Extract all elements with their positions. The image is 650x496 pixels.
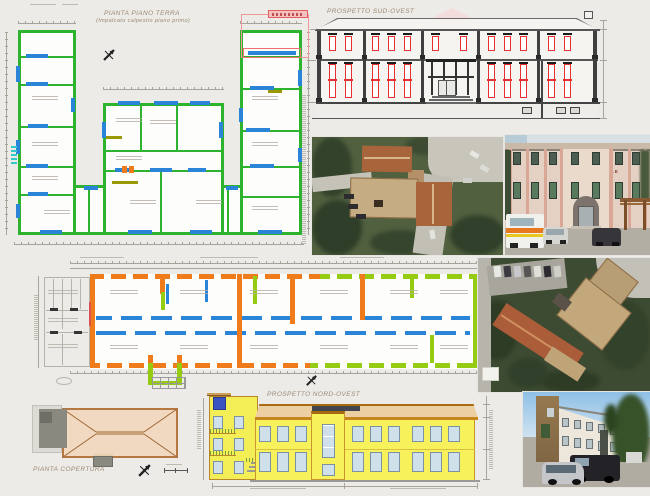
pilaster-capital (362, 98, 367, 102)
door-gap (412, 316, 421, 320)
room-label (116, 156, 142, 161)
door-gap (396, 331, 405, 335)
step (432, 96, 470, 98)
door-gap (382, 316, 391, 320)
opening-marker (150, 168, 172, 172)
dimension-ticks (600, 102, 607, 103)
opening-marker (28, 192, 48, 196)
aerial-photo-2 (478, 258, 650, 392)
wheel (572, 479, 581, 485)
opening-marker (26, 82, 48, 86)
window (295, 452, 307, 472)
revision-mark (89, 302, 91, 326)
door-gap (142, 316, 151, 320)
pilaster-capital (316, 55, 322, 59)
tree (640, 150, 650, 200)
pilaster (363, 31, 366, 102)
window-gap (276, 363, 283, 368)
door-mullion (446, 80, 447, 96)
car (503, 266, 511, 278)
sill-band (547, 79, 556, 81)
opening-marker (16, 204, 20, 218)
sill-band (371, 79, 380, 81)
car (543, 227, 568, 244)
wheel (530, 243, 538, 248)
door-gap (186, 331, 195, 335)
pergola-post (643, 200, 646, 230)
facade-photo: OSPEDALE CIVILE (505, 135, 650, 255)
legend-tick (11, 162, 17, 164)
pilaster (560, 148, 563, 228)
tall-window (322, 424, 335, 458)
dimension-text (62, 4, 78, 7)
dimension-ticks (310, 60, 316, 61)
opening-marker (258, 230, 282, 234)
dimension-line (486, 396, 487, 480)
sill-band (328, 79, 337, 81)
pilaster-capital (476, 98, 481, 102)
room-label (390, 345, 418, 350)
room-label (440, 290, 468, 295)
door-gap (126, 331, 135, 335)
dimension-ticks (310, 29, 316, 30)
wall-segment (129, 166, 134, 173)
door-gap (442, 316, 451, 320)
pilaster (609, 148, 612, 228)
window-lintel (487, 33, 496, 35)
door-gap (262, 316, 271, 320)
opening-marker (106, 136, 122, 139)
room-label (250, 345, 278, 350)
window (388, 452, 400, 472)
dimension-line (38, 276, 39, 368)
room-label (48, 344, 78, 349)
opening-marker (250, 164, 274, 168)
basement-window (556, 107, 566, 114)
window (259, 452, 271, 472)
sill-band (403, 79, 412, 81)
window (586, 439, 593, 449)
sw-elevation-title: PROSPETTO SUD-OVEST (327, 8, 414, 15)
window (632, 152, 640, 165)
wheel (560, 240, 566, 244)
opening-marker (118, 101, 140, 105)
window (404, 36, 411, 51)
window (430, 426, 442, 442)
window-lintel (371, 33, 380, 35)
window-gap (188, 363, 195, 368)
roof (317, 19, 597, 29)
hipped-roof-drawing (62, 408, 178, 458)
roof-plan-title: PIANTA COPERTURA (33, 466, 105, 473)
annotation-text (272, 13, 304, 16)
sill-band (344, 79, 353, 81)
window-lintel (431, 33, 440, 35)
window (548, 64, 555, 98)
window (430, 452, 442, 472)
dimension-ticks (18, 21, 76, 24)
opening-marker (71, 98, 75, 112)
window (549, 152, 557, 165)
stamp-oval (56, 377, 72, 385)
window (615, 182, 623, 199)
balcony-rail (210, 451, 236, 456)
wall-segment (160, 274, 165, 294)
window-gap (122, 363, 129, 368)
room-label (250, 290, 278, 295)
window (277, 426, 289, 442)
window (592, 182, 600, 199)
window-gap (302, 274, 309, 279)
room-label (116, 118, 142, 123)
room-label (110, 290, 138, 295)
legend-tick (11, 150, 17, 152)
opening-marker (128, 230, 152, 234)
dimension-text (80, 257, 124, 260)
dimension-text (250, 488, 306, 491)
door-marker (50, 331, 58, 334)
column (431, 62, 433, 95)
window (574, 420, 581, 429)
door-gap (336, 331, 345, 335)
dimension-ticks (344, 483, 345, 489)
room-label (196, 200, 222, 205)
window (504, 36, 511, 51)
door-gap (276, 331, 285, 335)
pediment (560, 146, 612, 149)
car (543, 266, 551, 278)
tower-door (213, 397, 226, 410)
window (615, 152, 623, 165)
southwest-elevation: PROSPETTO SUD-OVEST (305, 0, 650, 132)
northwest-elevation: PROSPETTO NORD-OVEST (195, 385, 495, 496)
car (344, 194, 354, 199)
dimension-text (30, 4, 56, 7)
pergola-post (624, 200, 627, 230)
window-lintel (547, 33, 556, 35)
window (574, 438, 581, 448)
window (488, 36, 495, 51)
room-label (48, 290, 78, 295)
window (571, 182, 579, 199)
window (513, 152, 521, 165)
scale-label (166, 464, 182, 467)
doorway (600, 430, 608, 456)
window (234, 416, 244, 429)
opening-marker (219, 122, 223, 138)
opening-marker (298, 148, 302, 162)
car (493, 266, 501, 278)
window-gap (170, 274, 177, 279)
wheel (546, 240, 552, 244)
window (549, 182, 557, 199)
tree (505, 150, 511, 220)
car (553, 266, 561, 278)
floor-band (255, 449, 475, 450)
column (467, 62, 469, 95)
wall-segment (140, 106, 142, 150)
window-gap (418, 274, 425, 279)
room-label (130, 200, 156, 205)
aerial-photo-1 (312, 137, 503, 255)
opening-marker (26, 54, 48, 58)
car (626, 452, 642, 463)
roof-vent (374, 200, 383, 207)
scale-bar (164, 470, 188, 471)
opening-marker (226, 186, 238, 190)
window-gap (440, 274, 447, 279)
dimension-text (34, 295, 38, 341)
window (592, 152, 600, 165)
nw-elevation-title: PROSPETTO NORD-OVEST (267, 391, 360, 398)
window-lintel (459, 33, 468, 35)
window (259, 426, 271, 442)
wheel (548, 479, 557, 485)
annotation-label (268, 10, 308, 18)
window-gap (298, 363, 305, 368)
sill-band (387, 79, 396, 81)
pilaster (544, 149, 547, 228)
pilaster-capital (536, 55, 541, 59)
canopy (428, 76, 474, 78)
window-lintel (387, 33, 396, 35)
pilaster (628, 149, 631, 228)
pilaster-capital (592, 55, 598, 59)
window (531, 152, 539, 165)
window (460, 36, 467, 51)
room-label (320, 290, 348, 295)
entrance-door (438, 80, 456, 96)
room-label (252, 206, 278, 211)
car (513, 266, 521, 278)
room-label (180, 290, 208, 295)
window (329, 64, 336, 98)
window-gap (318, 363, 325, 368)
window-gap (104, 274, 111, 279)
room-label (110, 345, 138, 350)
step (426, 102, 476, 104)
wall-segment (290, 274, 295, 324)
opening-marker (154, 101, 178, 105)
door-gap (322, 316, 331, 320)
opening-marker (40, 230, 62, 234)
window (412, 426, 424, 442)
window (564, 64, 571, 98)
dimension-line (203, 398, 204, 480)
entrance-door (578, 206, 594, 228)
window-lintel (503, 33, 512, 35)
room-label (48, 318, 78, 323)
car (348, 204, 358, 209)
wheel (596, 242, 603, 246)
window (277, 452, 289, 472)
upper-wall (317, 31, 597, 60)
ambulance-stripe (506, 234, 544, 237)
wheel (612, 242, 619, 246)
pilaster (317, 31, 321, 102)
pilaster (593, 31, 597, 102)
ambulance (506, 214, 544, 248)
window (352, 452, 364, 472)
window (322, 464, 335, 476)
window (388, 36, 395, 51)
pilaster-capital (476, 55, 481, 59)
car (463, 178, 472, 183)
door-gap (202, 316, 211, 320)
window-gap (148, 274, 155, 279)
car (542, 462, 584, 484)
car (523, 266, 531, 278)
window (548, 36, 555, 51)
dimension-text (197, 410, 201, 450)
window (345, 64, 352, 98)
wall-segment (160, 172, 162, 232)
window (234, 438, 244, 451)
window-gap (258, 274, 265, 279)
car (533, 266, 541, 278)
tree (508, 358, 548, 388)
opening-marker (239, 108, 243, 122)
room-label (44, 210, 70, 215)
door-marker (70, 308, 78, 311)
window-lintel (328, 33, 337, 35)
street-photo (523, 392, 650, 487)
windshield (510, 218, 534, 226)
annex-wall (62, 334, 63, 365)
window (234, 461, 244, 474)
plan-wing (240, 30, 302, 235)
door-gap (306, 331, 315, 335)
wall-segment (161, 292, 165, 310)
window (547, 408, 554, 417)
room-label (180, 345, 208, 350)
sill-band (503, 79, 512, 81)
window-gap (210, 363, 217, 368)
window-gap (192, 274, 199, 279)
window (372, 64, 379, 98)
window-gap (330, 274, 337, 279)
door-gap (172, 316, 181, 320)
wall-segment (237, 274, 242, 368)
legend-tick (11, 158, 17, 160)
wall-segment (106, 150, 221, 152)
window-lintel (563, 33, 572, 35)
pilaster-capital (362, 55, 367, 59)
window (432, 36, 439, 51)
wall-segment (122, 166, 127, 173)
dimension-ticks (310, 102, 316, 103)
wall-segment (88, 188, 90, 232)
window-gap (214, 274, 221, 279)
basement-window (570, 107, 580, 114)
door-gap (112, 316, 121, 320)
pilaster-capital (316, 98, 322, 102)
ground-floor-plan: PIANTA PIANO TERRA (Impalcato calpestio … (0, 0, 312, 256)
roof-plan: PIANTA COPERTURA (0, 396, 200, 496)
dimension-ticks (600, 118, 607, 119)
window (562, 436, 569, 446)
window-gap (450, 363, 457, 368)
tree (604, 404, 618, 434)
opening-marker (112, 181, 138, 184)
wheel (604, 476, 614, 483)
opening-marker (84, 186, 98, 190)
shutter (541, 424, 550, 438)
room-label (440, 345, 468, 350)
ground-line (250, 480, 480, 482)
pilaster-capital (420, 98, 425, 102)
window (388, 64, 395, 98)
scale-tick (175, 468, 176, 473)
window-gap (396, 274, 403, 279)
window (345, 36, 352, 51)
window (520, 36, 527, 51)
window (531, 182, 539, 199)
pilaster-capital (592, 98, 598, 102)
legend-tick (11, 146, 17, 148)
opening-marker (268, 90, 282, 93)
opening-marker (298, 70, 302, 86)
window-gap (100, 363, 107, 368)
dimension-ticks (14, 242, 304, 245)
window-gap (428, 363, 435, 368)
window-gap (352, 274, 359, 279)
window (520, 64, 527, 98)
roof-block (93, 456, 113, 467)
window-gap (462, 274, 469, 279)
balcony-rail (210, 429, 236, 434)
dimension-ticks (103, 87, 224, 90)
car-window (546, 229, 564, 235)
door-gap (246, 331, 255, 335)
window-lintel (403, 33, 412, 35)
window-gap (166, 363, 173, 368)
window-gap (406, 363, 413, 368)
window (504, 64, 511, 98)
annotation-outline (243, 48, 301, 58)
roof-ridge (364, 157, 410, 159)
door-gap (456, 331, 465, 335)
legend-tick (11, 154, 17, 156)
dimension-ticks (600, 60, 607, 61)
scale-tick (164, 468, 165, 473)
basement-window (522, 107, 532, 114)
first-floor-plan (0, 256, 496, 396)
roof (362, 146, 412, 173)
wall-segment (227, 188, 229, 232)
window (295, 426, 307, 442)
ground-floor-plan-title: PIANTA PIANO TERRA (104, 10, 180, 17)
window (632, 182, 640, 199)
opening-marker (190, 101, 210, 105)
window (213, 416, 223, 429)
ground-line (312, 118, 604, 119)
wall-segment (360, 274, 365, 320)
window-gap (374, 274, 381, 279)
sill-band (563, 79, 572, 81)
door-marker (74, 331, 82, 334)
window-gap (126, 274, 133, 279)
window (488, 64, 495, 98)
scale-tick (187, 468, 188, 473)
window (513, 182, 521, 199)
opening-marker (166, 284, 169, 304)
window (329, 36, 336, 51)
window (213, 461, 223, 474)
map-marker (482, 367, 499, 381)
legend-table (152, 377, 186, 389)
opening-marker (28, 124, 48, 128)
